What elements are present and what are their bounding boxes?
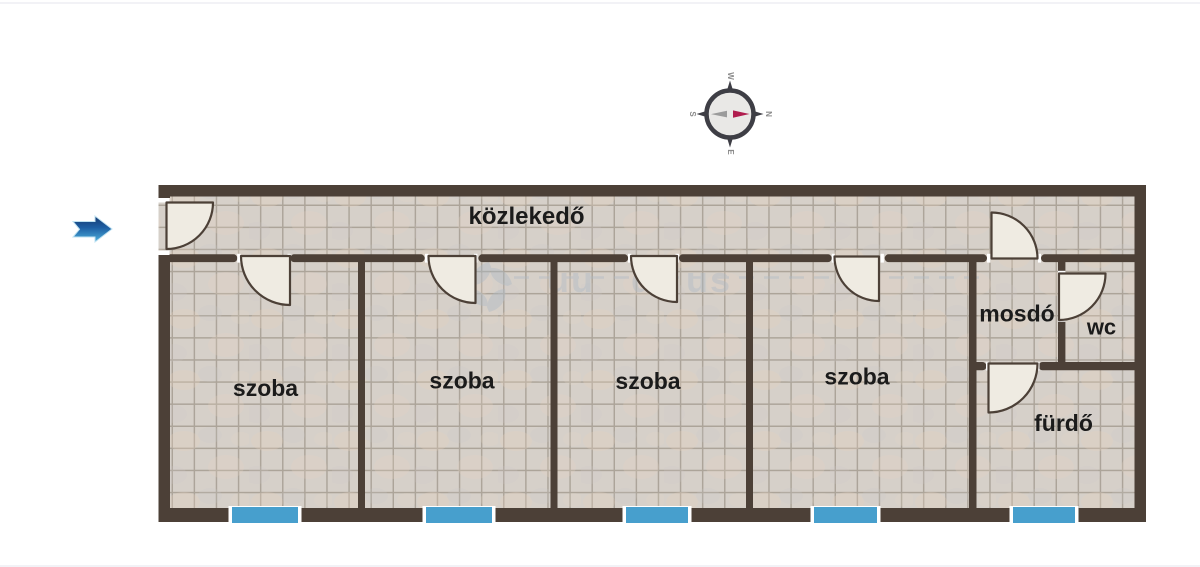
svg-text:S: S	[688, 111, 697, 117]
svg-text:E: E	[726, 149, 735, 155]
svg-text:us: us	[686, 259, 732, 300]
svg-text:szoba: szoba	[615, 368, 680, 394]
svg-text:wc: wc	[1086, 315, 1116, 340]
svg-text:mosdó: mosdó	[979, 301, 1054, 327]
svg-text:szoba: szoba	[429, 368, 494, 394]
svg-text:szoba: szoba	[233, 375, 298, 401]
svg-text:közlekedő: közlekedő	[468, 203, 584, 230]
svg-text:szoba: szoba	[824, 364, 889, 390]
svg-text:fürdő: fürdő	[1034, 410, 1093, 436]
svg-text:W: W	[726, 72, 735, 80]
svg-text:N: N	[764, 111, 773, 117]
